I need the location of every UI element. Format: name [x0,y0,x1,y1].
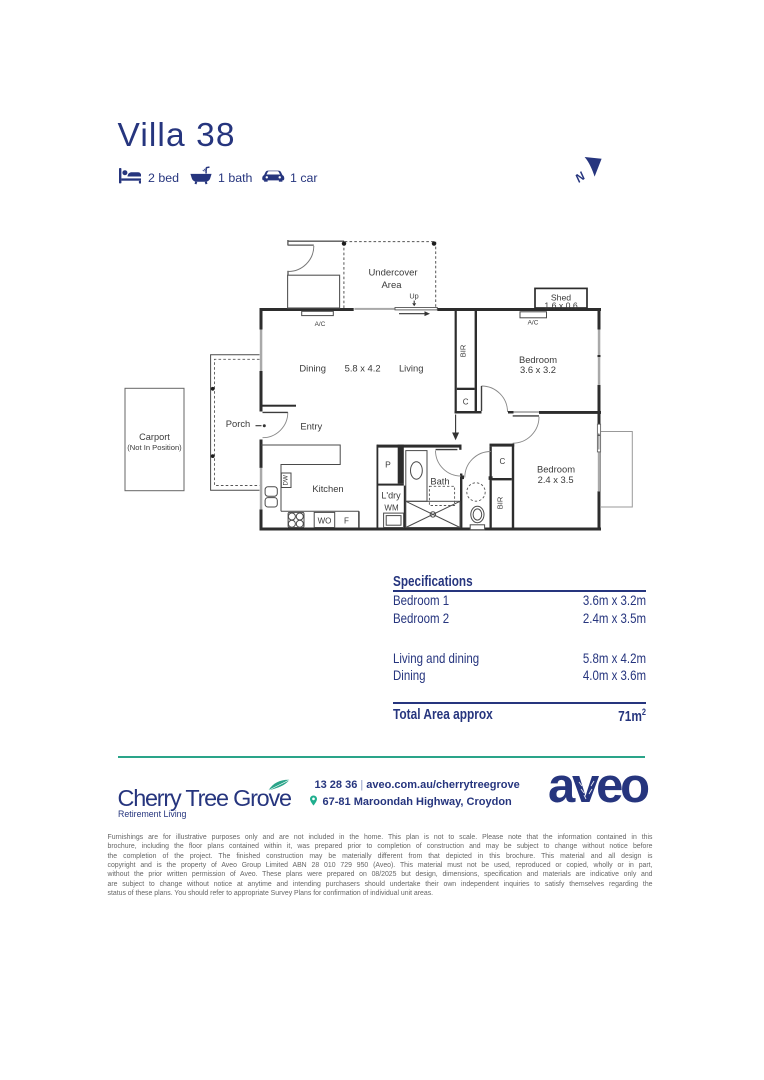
svg-text:1.6 x 0.6: 1.6 x 0.6 [544,300,577,310]
svg-text:P: P [385,460,391,470]
svg-text:C: C [463,398,469,407]
svg-text:F: F [344,517,349,526]
svg-text:Bath: Bath [430,476,449,487]
svg-text:N: N [572,169,588,186]
svg-text:Porch: Porch [226,418,251,429]
svg-text:5.8 x 4.2: 5.8 x 4.2 [345,362,381,373]
svg-text:Living: Living [399,362,424,373]
svg-text:WM: WM [384,504,399,513]
svg-text:Up: Up [409,291,418,300]
svg-text:Undercover: Undercover [368,268,417,279]
svg-text:BIR: BIR [459,344,468,357]
svg-text:BIR: BIR [496,496,505,509]
svg-text:A/C: A/C [315,321,326,328]
svg-text:A/C: A/C [528,320,539,327]
svg-text:WO: WO [318,517,332,526]
svg-text:Kitchen: Kitchen [312,483,343,494]
svg-text:Area: Area [381,280,402,291]
svg-text:3.6 x 3.2: 3.6 x 3.2 [520,364,556,375]
svg-text:L'dry: L'dry [381,491,401,501]
svg-text:DW: DW [283,475,290,485]
svg-text:2.4 x 3.5: 2.4 x 3.5 [538,474,574,485]
svg-text:(Not In Position): (Not In Position) [127,443,182,452]
svg-text:C: C [500,457,506,466]
svg-text:Dining: Dining [299,362,326,373]
svg-text:Carport: Carport [139,432,170,442]
svg-text:Entry: Entry [300,421,322,432]
